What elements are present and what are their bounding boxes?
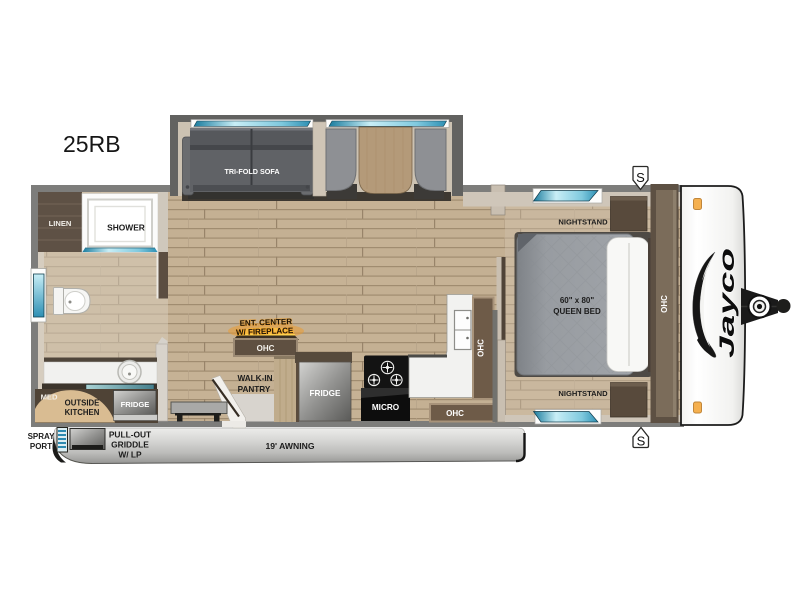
svg-text:NIGHTSTAND: NIGHTSTAND xyxy=(558,218,608,227)
svg-text:60" x 80": 60" x 80" xyxy=(560,296,594,305)
svg-text:19' AWNING: 19' AWNING xyxy=(266,441,315,451)
svg-text:GRIDDLE: GRIDDLE xyxy=(111,440,149,450)
svg-text:S: S xyxy=(637,434,646,449)
svg-text:QUEEN BED: QUEEN BED xyxy=(553,307,601,316)
svg-text:MED: MED xyxy=(41,393,58,402)
svg-text:TRI-FOLD SOFA: TRI-FOLD SOFA xyxy=(224,167,279,176)
svg-text:25RB: 25RB xyxy=(63,131,121,157)
svg-text:PULL-OUT: PULL-OUT xyxy=(109,430,152,440)
svg-text:NIGHTSTAND: NIGHTSTAND xyxy=(558,389,608,398)
svg-text:WALK-IN: WALK-IN xyxy=(237,374,272,383)
svg-text:OHC: OHC xyxy=(257,344,275,353)
svg-text:Jayco: Jayco xyxy=(716,248,739,358)
svg-text:MICRO: MICRO xyxy=(372,403,400,412)
svg-text:PANTRY: PANTRY xyxy=(238,385,271,394)
svg-text:OUTSIDE: OUTSIDE xyxy=(65,399,100,408)
svg-text:SHOWER: SHOWER xyxy=(107,223,145,233)
svg-text:OHC: OHC xyxy=(446,409,464,418)
svg-text:W/ LP: W/ LP xyxy=(118,450,142,460)
svg-text:FRIDGE: FRIDGE xyxy=(310,389,341,398)
svg-text:KITCHEN: KITCHEN xyxy=(65,408,100,417)
svg-text:OHC: OHC xyxy=(477,339,486,357)
svg-text:SPRAY: SPRAY xyxy=(28,432,55,441)
svg-text:PORT: PORT xyxy=(30,442,52,451)
svg-text:OHC: OHC xyxy=(660,295,669,313)
svg-text:LINEN: LINEN xyxy=(49,219,72,228)
svg-text:FRIDGE: FRIDGE xyxy=(121,400,150,409)
svg-text:S: S xyxy=(636,170,645,185)
